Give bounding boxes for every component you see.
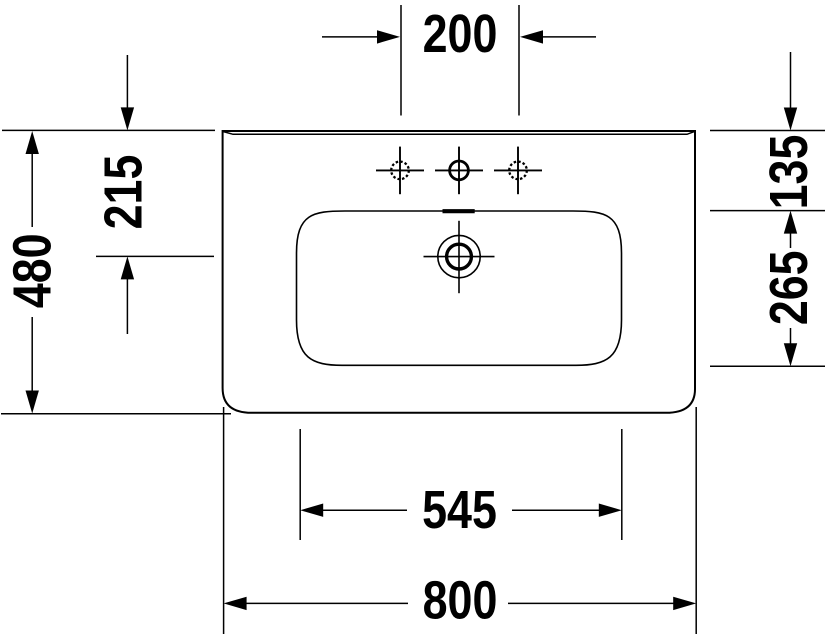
svg-text:265: 265 (758, 250, 819, 325)
svg-text:480: 480 (1, 233, 62, 308)
svg-text:545: 545 (422, 479, 497, 540)
svg-text:215: 215 (93, 155, 154, 230)
svg-text:135: 135 (758, 135, 819, 210)
svg-text:200: 200 (423, 3, 498, 64)
svg-text:800: 800 (423, 570, 498, 631)
